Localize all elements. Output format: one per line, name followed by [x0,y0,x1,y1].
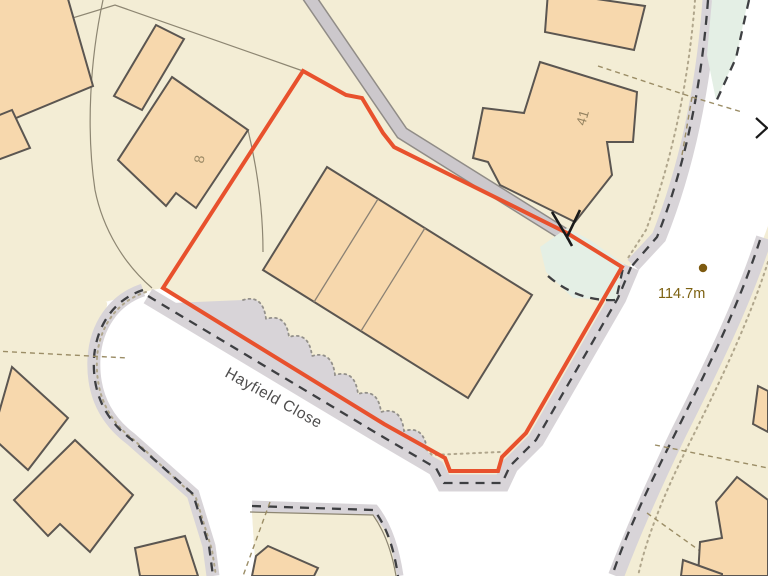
spot-height-label: 114.7m [658,286,705,302]
map-canvas[interactable]: Hayfield Close 114.7m 8 41 [0,0,768,576]
spot-height-dot [699,264,707,272]
map-viewport: Hayfield Close 114.7m 8 41 [0,0,768,576]
